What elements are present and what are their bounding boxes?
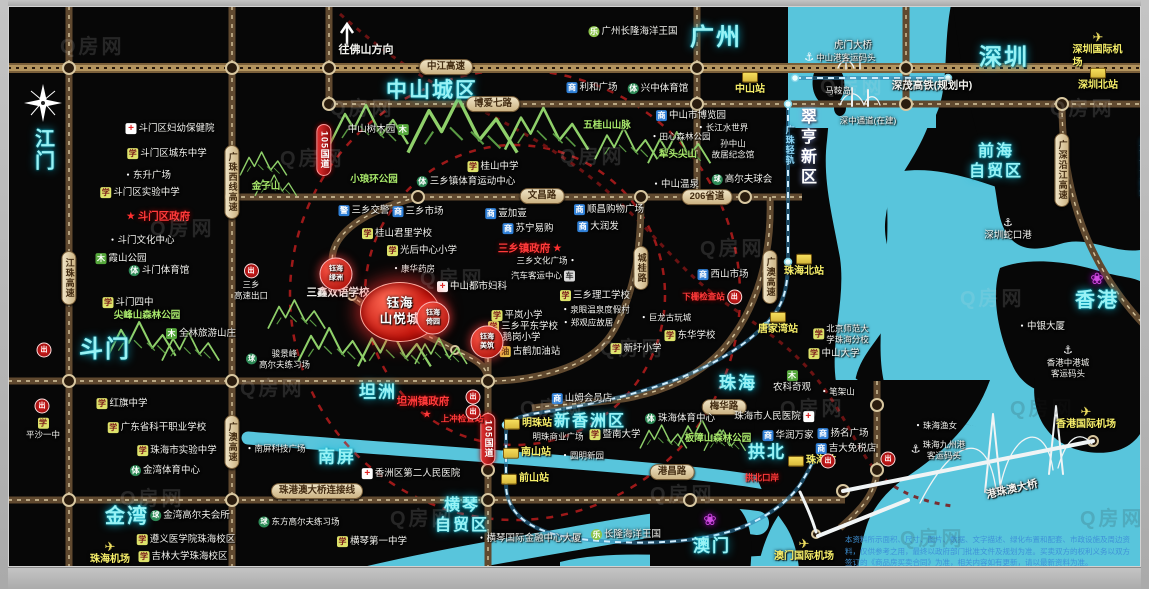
plane-icon: ✈ xyxy=(799,537,810,550)
poi-zh-peoples-hospital: 珠海市人民医院+ xyxy=(734,411,814,423)
poi-zs-hotspring: ●中山温泉 xyxy=(653,179,699,191)
fun-icon: 乐 xyxy=(588,27,599,38)
school-icon: 学 xyxy=(610,344,621,355)
school-icon: 学 xyxy=(813,329,824,340)
anchor-icon: ⚓ xyxy=(1003,218,1013,229)
region-hengqin: 横琴 自贸区 xyxy=(435,496,489,536)
shop-icon: 商 xyxy=(552,394,563,405)
airport-zhuhai: ✈珠海机场 xyxy=(90,540,130,567)
poi-changlong-ocean: 乐长隆海洋王国 xyxy=(591,529,661,541)
dot-icon: ● xyxy=(562,305,568,316)
poi-xingzhong-gym: 体兴中体育馆 xyxy=(628,83,689,95)
poi-sysu-zhuhai: 学中山大学 xyxy=(808,348,859,360)
region-zhongshan-urban: 中山城区 xyxy=(386,78,478,104)
road-gangchang: 港昌路 xyxy=(650,464,695,480)
school-icon: 学 xyxy=(808,349,819,360)
region-qianhai: 前海 自贸区 xyxy=(969,142,1023,182)
road-zhongjiang-expwy: 中江高速 xyxy=(419,59,473,75)
exit-icon: 出 xyxy=(466,390,481,405)
region-gongbei: 拱北 xyxy=(748,441,786,462)
region-jiangmen: 江门 xyxy=(30,128,55,172)
region-cuiheng: 翠亨新区 xyxy=(796,108,816,188)
poi-rtmart: 商大润发 xyxy=(577,221,619,233)
road-wenchang: 文昌路 xyxy=(520,188,565,204)
fun-icon: 乐 xyxy=(591,530,602,541)
school-icon: 学 xyxy=(337,537,348,548)
poi-doumen-mch: +斗门区妇幼保健院 xyxy=(125,123,214,135)
poi-zs-expo: 商中山市博览园 xyxy=(656,110,726,122)
sport-icon: 体 xyxy=(417,177,428,188)
sport-icon: 体 xyxy=(628,84,639,95)
poi-sx-culture-plaza: 三乡文化广场● xyxy=(516,256,575,267)
poi-banzhangshan-park: 板障山森林公园 xyxy=(685,433,752,445)
region-shenzhen: 深圳 xyxy=(979,43,1029,72)
icon-exit-tanzhou-1: 出 xyxy=(466,390,481,405)
plane-icon: ✈ xyxy=(1081,405,1092,418)
region-macau: 澳门 xyxy=(693,535,731,556)
poi-changjiang-waterpark: ●长江水世界 xyxy=(698,123,749,134)
poi-boc-tower: ●中银大厦 xyxy=(1019,321,1065,333)
train-icon xyxy=(788,456,804,467)
exit-icon: 出 xyxy=(881,452,896,467)
dot-icon: ● xyxy=(651,132,657,143)
golf-icon: 球 xyxy=(712,175,723,186)
poi-junjingfeng-golf: 球骏景峰 高尔夫练习场 xyxy=(246,348,310,369)
poi-humen-bridge: 虎门大桥 xyxy=(834,40,872,52)
rail-shenmao: 深茂高铁(规划中) xyxy=(892,79,973,92)
dot-icon: ● xyxy=(570,256,576,267)
poi-yijiayi: 商壹加壹 xyxy=(485,208,527,220)
shop-icon: 商 xyxy=(485,209,496,220)
poi-dongfang-golf: 球东方高尔夫练习场 xyxy=(258,517,339,528)
poi-hk-china-ferry: ⚓香港中港城 客运码头 xyxy=(1047,345,1090,378)
station-mingzhu: 明珠站 xyxy=(504,418,552,431)
poi-maan-island: 马鞍岛 xyxy=(825,86,851,97)
park-icon: 木 xyxy=(95,254,106,265)
dir-foshan: 往佛山方向 xyxy=(339,44,394,58)
train-icon xyxy=(796,254,812,265)
poi-xiazha-checkpoint: 下栅检查站出 xyxy=(682,290,742,305)
icon-exit-west-1: 出 xyxy=(37,343,52,358)
region-tanzhou: 坦洲 xyxy=(359,381,397,402)
label-hzm-bridge: 港珠澳大桥 xyxy=(985,478,1039,503)
airport-shenzhen: ✈深圳国际机场 xyxy=(1073,31,1124,70)
region-zhuhai: 珠海 xyxy=(719,372,757,393)
poi-guishan-school: 学桂山中学 xyxy=(467,161,518,173)
poi-sanxiang-police: 警三乡交警 xyxy=(338,205,389,217)
train-icon xyxy=(501,474,517,485)
school-icon: 学 xyxy=(491,311,502,322)
poi-sanxiang-market: 商三乡市场 xyxy=(392,206,443,218)
poi-yuanmingxinyuan: ●圆明新园 xyxy=(562,451,604,462)
poi-zh-shiyan-school: 学珠海市实验中学 xyxy=(137,445,217,457)
poi-sanxiang-gov: 三乡镇政府★ xyxy=(498,242,562,255)
poi-jinzishan: 金子山 xyxy=(252,181,281,193)
plane-icon: ✈ xyxy=(105,540,116,553)
train-icon xyxy=(1090,68,1106,79)
poi-guishan-junli: 学桂山君里学校 xyxy=(362,228,432,240)
poi-hengqin-ifc: ●横琴国际金融中心大厦 xyxy=(478,533,581,545)
exit-icon: 出 xyxy=(35,399,50,414)
station-zhuhai-north: 珠海北站 xyxy=(784,254,824,279)
road-boai-7th: 博爱七路 xyxy=(466,96,520,112)
road-guangzhu-west: 广珠西线高速 xyxy=(224,145,239,219)
poi-tanzhou-gov: 坦洲镇政府 xyxy=(397,395,450,408)
poi-lihe-plaza: 商利和广场 xyxy=(566,82,617,94)
school-icon: 学 xyxy=(108,423,119,434)
poi-guanghou-primary: 学光后中心小学 xyxy=(387,245,457,257)
road-s206: 206省道 xyxy=(682,189,733,205)
shop-icon: 商 xyxy=(656,111,667,122)
disclaimer: 本资料所示面积、尺寸、图片、数据、文字描述、绿化布置和配套、市政设施及周边资料，… xyxy=(845,534,1133,569)
shop-icon: 商 xyxy=(762,431,773,442)
poi-nongke-wonder: 木农科奇观 xyxy=(773,370,811,394)
poi-jiuzhou-port: ⚓珠海九州港 客运码头 xyxy=(911,439,965,460)
icon-exit-west-2: 出 xyxy=(35,399,50,414)
shop-icon: 商 xyxy=(392,207,403,218)
poi-zunyi-medical: 学遵义医学院珠海校区 xyxy=(137,534,236,546)
exit-icon: 出 xyxy=(821,454,836,469)
dot-icon: ● xyxy=(698,123,704,134)
police-icon: 警 xyxy=(338,206,349,217)
park-icon: 木 xyxy=(397,125,408,136)
train-icon xyxy=(742,72,758,83)
rail-guangzhu-light: 广珠轻轨 xyxy=(783,125,794,165)
poi-pingsha-school: 学平沙一中 xyxy=(26,418,60,441)
region-hongkong: 香港 xyxy=(1075,289,1119,314)
poi-sams-club: 商山姆会员店 xyxy=(552,393,613,405)
poi-nanping-tech: ●南屏科技广场 xyxy=(246,444,305,455)
icon-port-gongbei: 出 xyxy=(821,454,836,469)
golf-icon: 球 xyxy=(246,354,257,365)
poi-golf-club: 球高尔夫球会 xyxy=(712,174,773,186)
school-icon: 学 xyxy=(137,535,148,546)
poi-doumen-gov: ★斗门区政府 xyxy=(126,210,190,223)
train-icon xyxy=(504,419,520,430)
icon-hk-bauhinia: ❀ xyxy=(1090,270,1103,290)
school-icon: 学 xyxy=(37,418,48,429)
poi-gongbei-checkpoint: 拱北口岸 xyxy=(745,473,779,484)
star-icon: ★ xyxy=(126,212,136,223)
school-icon: 学 xyxy=(100,188,111,199)
station-shenzhen-north: 深圳北站 xyxy=(1078,68,1118,93)
poi-zhuhai-fisher-girl: ●珠海渔女 xyxy=(915,421,957,432)
region-jinwan: 金湾 xyxy=(105,505,149,530)
poi-jianfengshan-park: 尖峰山森林公园 xyxy=(114,310,181,322)
dot-icon: ● xyxy=(821,387,827,398)
road-jiangzhu: 江珠高速 xyxy=(61,251,76,305)
school-icon: 学 xyxy=(127,149,138,160)
station-zhongshan: 中山站 xyxy=(735,72,765,97)
frame-right xyxy=(1141,0,1149,589)
hosp-icon: + xyxy=(437,282,448,293)
poi-shekou-port: ⚓深圳蛇口港 xyxy=(984,218,1032,242)
school-icon: 学 xyxy=(560,291,571,302)
poi-doumen-4th-school: 学斗门四中 xyxy=(102,297,153,309)
golf-icon: 球 xyxy=(258,517,269,528)
poi-julong-antique: ●巨龙古玩城 xyxy=(641,313,692,324)
dot-icon: ● xyxy=(562,451,568,462)
poi-mingzhu-plaza: 明珠商业广场 xyxy=(532,432,583,443)
road-guangshen-riverside: 广深沿江高速 xyxy=(1054,133,1069,207)
school-icon: 学 xyxy=(137,446,148,457)
sport-icon: 体 xyxy=(129,266,140,277)
poi-bnu-zhuhai: 学北京师范大 学珠海分校 xyxy=(813,323,869,344)
school-icon: 学 xyxy=(102,298,113,309)
dot-icon: ● xyxy=(125,171,131,182)
school-icon: 学 xyxy=(589,430,600,441)
road-guangao-east: 广澳高速 xyxy=(762,250,777,304)
poi-suning: 商苏宁易购 xyxy=(502,223,553,235)
shop-icon: 商 xyxy=(574,205,585,216)
poi-zhengguanying: ●郑观应故居 xyxy=(563,318,614,329)
map-stage: 江门斗门中山城区广州深圳前海 自贸区翠亨新区香港珠海新香洲区拱北坦洲南屏金湾横琴… xyxy=(0,0,1149,589)
poi-changlong-gz: 乐广州长隆海洋王国 xyxy=(588,26,677,38)
poi-xiashan-park: 木霞山公园 xyxy=(95,253,146,265)
school-icon: 学 xyxy=(138,552,149,563)
school-icon: 学 xyxy=(387,246,398,257)
poi-kegan-college: 学广东省科干职业学校 xyxy=(108,422,207,434)
school-icon: 学 xyxy=(664,331,675,342)
poi-shenzhong-corridor: 深中通道(在建) xyxy=(840,116,897,127)
sport-icon: 体 xyxy=(130,466,141,477)
poi-xiangzhou-2nd-hospital: +香洲区第二人民医院 xyxy=(362,468,461,480)
dot-icon: ● xyxy=(246,444,252,455)
poi-doumen-chengdong: 学斗门区城东中学 xyxy=(127,148,207,160)
exit-icon: 出 xyxy=(37,343,52,358)
poi-kanghua-pharmacy: ●康华药房 xyxy=(393,264,435,275)
poi-xishan-market: 商西山市场 xyxy=(697,269,748,281)
school-icon: 学 xyxy=(467,162,478,173)
poi-litoujian-hill: 犁头尖山 xyxy=(659,149,697,161)
icon-star-tanzhou: ★ xyxy=(422,408,431,421)
poi-hongqi-school: 学红旗中学 xyxy=(96,398,147,410)
school-icon: 学 xyxy=(362,229,373,240)
shop-icon: 商 xyxy=(817,429,828,440)
hosp-icon: + xyxy=(362,469,373,480)
poi-sx-expwy-exit: 出三乡 高速出口 xyxy=(234,263,268,300)
anchor-icon: ⚓ xyxy=(911,445,921,456)
region-doumen: 斗门 xyxy=(79,335,131,365)
poi-dongsheng-plaza: ●东升广场 xyxy=(125,170,171,182)
airport-macau: ✈澳门国际机场 xyxy=(774,537,834,564)
poi-jilin-univ: 学吉林大学珠海校区 xyxy=(138,551,227,563)
poi-sunyatsen-residence: 孙中山 故居纪念馆 xyxy=(712,138,755,159)
station-tangjiawan: 唐家湾站 xyxy=(758,312,798,337)
poi-doumen-shiyan: 学斗门区实验中学 xyxy=(100,187,180,199)
icon-macau-lotus: ❀ xyxy=(703,511,716,531)
road-guangao-west: 广澳高速 xyxy=(224,415,239,469)
poi-zs-arboretum: 中山树木园木 xyxy=(348,124,409,136)
frame-bottom xyxy=(0,567,1149,589)
project-yuhai-lvzhou: 钰海 绿洲 xyxy=(320,258,353,291)
poi-yangming-plaza: 商扬名广场 xyxy=(817,428,868,440)
exit-icon: 出 xyxy=(243,263,258,278)
frame-top xyxy=(0,0,1149,6)
project-yuhai-yiyuan: 钰海 倚园 xyxy=(417,302,450,335)
dot-icon: ● xyxy=(653,180,659,191)
poi-sx-sports-center: 体三乡镇体育运动中心 xyxy=(417,176,516,188)
dot-icon: ● xyxy=(641,313,647,324)
shop-icon: 商 xyxy=(697,270,708,281)
station-qianshan: 前山站 xyxy=(501,473,549,486)
dot-icon: ● xyxy=(915,421,921,432)
poi-zh-sports-center: 体珠海体育中心 xyxy=(645,413,715,425)
dot-icon: ● xyxy=(393,264,399,275)
poi-jinwan-golf: 球金湾高尔夫会所 xyxy=(150,510,230,522)
school-icon: 学 xyxy=(96,399,107,410)
shop-icon: 商 xyxy=(502,224,513,235)
train-icon xyxy=(503,448,519,459)
region-nanping: 南屏 xyxy=(318,446,356,467)
park-icon: 木 xyxy=(786,370,797,381)
sport-icon: 体 xyxy=(645,414,656,425)
exit-icon: 出 xyxy=(727,290,742,305)
poi-wuguishan: 五桂山山脉 xyxy=(583,120,631,132)
poi-bijiashan: ●笔架山 xyxy=(821,387,855,398)
shop-icon: 商 xyxy=(577,222,588,233)
bus-icon: 车 xyxy=(564,271,575,282)
poi-zhongshan-port: ⚓中山港客运码头 xyxy=(804,53,875,64)
poi-jinwan-sports: 体金湾体育中心 xyxy=(130,465,200,477)
poi-shunchang-plaza: 商顺昌购物广场 xyxy=(574,204,644,216)
map-labels: 江门斗门中山城区广州深圳前海 自贸区翠亨新区香港珠海新香洲区拱北坦洲南屏金湾横琴… xyxy=(0,0,1149,589)
airport-hongkong: ✈香港国际机场 xyxy=(1056,405,1116,432)
hosp-icon: + xyxy=(803,412,814,423)
poi-hengqin-no1-school: 学横琴第一中学 xyxy=(337,536,407,548)
poi-doumen-gym: 体斗门体育馆 xyxy=(129,265,190,277)
train-icon xyxy=(770,312,786,323)
poi-quanyan-resort: ●泉眼温泉度假村 xyxy=(562,305,630,316)
star-icon: ★ xyxy=(552,244,562,255)
poi-bus-terminal: 汽车客运中心车 xyxy=(511,271,575,282)
poi-zs-dushi-gyn: +中山都市妇科 xyxy=(437,281,507,293)
frame-left xyxy=(0,0,8,589)
anchor-icon: ⚓ xyxy=(804,53,814,64)
park-icon: 木 xyxy=(166,329,177,340)
icon-exit-tanzhou-2: 出 xyxy=(466,405,481,420)
poi-xinxu-primary: 学新圩小学 xyxy=(610,343,661,355)
anchor-icon: ⚓ xyxy=(1063,345,1073,356)
dot-icon: ● xyxy=(109,236,115,247)
poi-jinan-univ: 学暨南大学 xyxy=(589,429,640,441)
golf-icon: 球 xyxy=(150,511,161,522)
poi-sx-polytechnic: 学三乡理工学校 xyxy=(560,290,630,302)
hosp-icon: + xyxy=(125,124,136,135)
poi-quanlin-resort: 木全林旅游山庄 xyxy=(166,328,236,340)
dot-icon: ● xyxy=(478,534,484,545)
poi-huarun: 商华润万家 xyxy=(762,430,813,442)
project-yuhai-meizhu: 钰海 美筑 xyxy=(471,326,504,359)
road-g105-north: 105国道 xyxy=(316,124,331,176)
poi-guhe-gas: 油古鹤加油站 xyxy=(500,346,561,358)
road-hzm-link: 珠港澳大桥连接线 xyxy=(271,483,363,499)
dot-icon: ● xyxy=(563,318,569,329)
icon-port-east: 出 xyxy=(881,452,896,467)
road-chenggui: 城桂路 xyxy=(633,246,648,290)
shop-icon: 商 xyxy=(566,83,577,94)
dot-icon: ● xyxy=(1019,322,1025,333)
region-guangzhou: 广州 xyxy=(690,23,742,53)
poi-doumen-culture: ●斗门文化中心 xyxy=(109,235,174,247)
poi-xiaolanghuan-park: 小琅环公园 xyxy=(350,174,398,186)
plane-icon: ✈ xyxy=(1093,31,1104,44)
station-nanshan: 南山站 xyxy=(503,447,551,460)
exit-icon: 出 xyxy=(466,405,481,420)
poi-donghua-school: 学东华学校 xyxy=(664,330,715,342)
